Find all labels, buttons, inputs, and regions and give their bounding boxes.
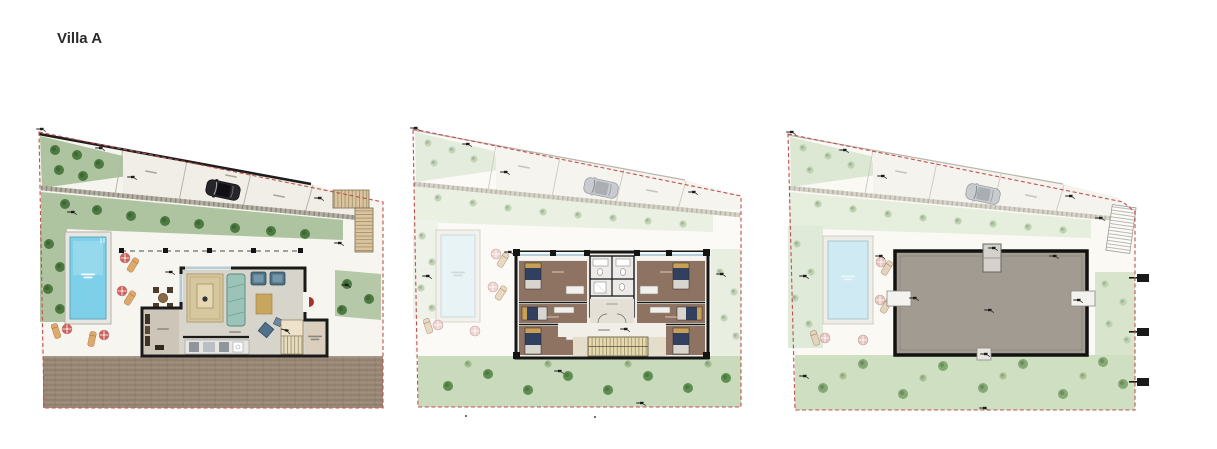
floor-plan-roof <box>783 126 1159 414</box>
coffee-table <box>197 284 213 308</box>
house-upper-floor <box>513 249 710 359</box>
corridor <box>558 323 666 337</box>
bedroom <box>637 261 705 301</box>
drawing-sheet: Villa A <box>0 0 1217 449</box>
roof-vent <box>887 291 911 306</box>
bathrooms <box>590 256 634 323</box>
roof <box>887 244 1095 360</box>
floor-plan-upper <box>408 124 748 420</box>
guest-room <box>305 322 325 354</box>
pool-faded <box>823 236 873 324</box>
garden-strip <box>795 355 1135 410</box>
accent-rug <box>256 294 272 314</box>
roof-vent <box>1071 291 1095 306</box>
swimming-pool <box>65 232 111 324</box>
pool-faded <box>436 230 480 322</box>
page-title: Villa A <box>57 30 102 47</box>
floor-plan-ground <box>35 124 391 414</box>
